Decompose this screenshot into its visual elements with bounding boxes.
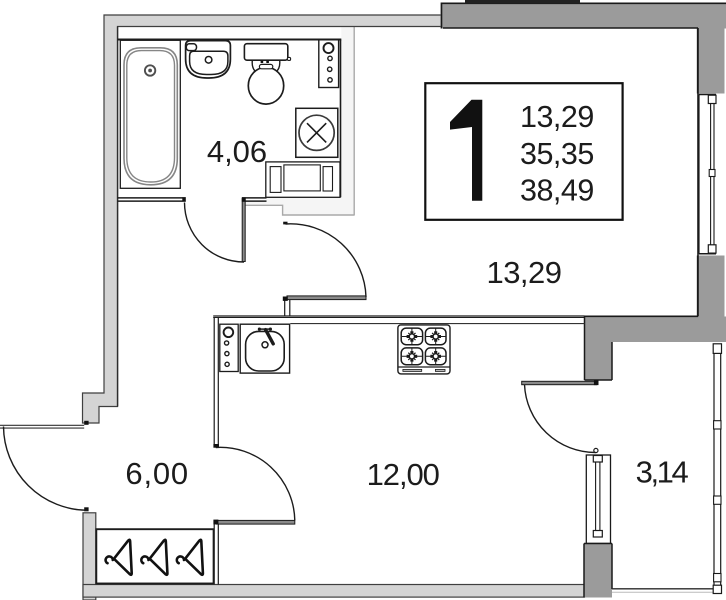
svg-text:6,00: 6,00 — [125, 456, 189, 491]
svg-text:13,29: 13,29 — [520, 100, 594, 134]
svg-text:3,14: 3,14 — [636, 454, 689, 489]
svg-text:35,35: 35,35 — [520, 137, 594, 171]
svg-text:13,29: 13,29 — [486, 255, 561, 290]
svg-text:4,06: 4,06 — [207, 134, 267, 169]
svg-text:38,49: 38,49 — [520, 173, 594, 207]
svg-text:12,00: 12,00 — [367, 457, 440, 492]
